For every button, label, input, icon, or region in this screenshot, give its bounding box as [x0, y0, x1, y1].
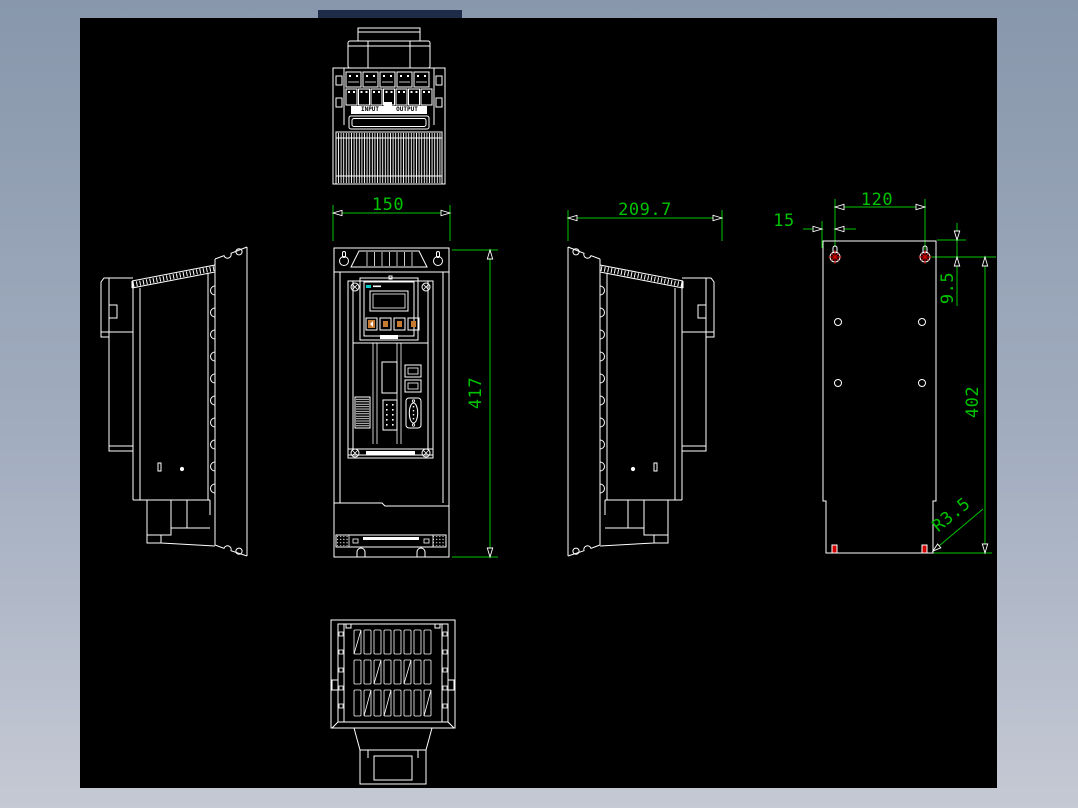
dim-hole-spacing-horizontal: 120 — [852, 191, 902, 210]
status-led — [366, 285, 371, 288]
top-view-drawing — [332, 20, 446, 186]
front-vent-strip — [351, 251, 427, 267]
bottom-connector-housing — [354, 728, 432, 784]
plate-bottom-slots — [832, 545, 927, 553]
vent-slot-grid — [354, 630, 431, 716]
dim-hole-spacing-vertical: 402 — [949, 378, 997, 426]
db9-connector — [406, 398, 421, 428]
keypad-buttons — [366, 318, 419, 330]
plate-keyhole-left — [829, 246, 842, 264]
plate-keyhole-right — [919, 246, 932, 264]
top-navy-strip — [318, 10, 462, 18]
dim-front-width: 150 — [363, 196, 413, 215]
dim-side-depth: 209.7 — [608, 201, 682, 220]
bottom-gland-band — [336, 535, 446, 547]
bottom-view-drawing — [330, 618, 456, 788]
dim-hole-edge-offset: 15 — [768, 212, 800, 231]
heatsink-fins — [336, 132, 442, 184]
dim-front-height: 417 — [452, 369, 500, 417]
drawing-canvas[interactable]: 150 209.7 417 120 15 9.5 402 R3.5 INPUT … — [80, 18, 997, 788]
keypad-panel — [360, 278, 419, 340]
plate-pilot-holes — [835, 319, 926, 387]
left-side-view-drawing — [92, 245, 248, 558]
output-terminal-label: OUTPUT — [388, 106, 426, 114]
front-view-drawing — [333, 247, 450, 558]
terminal-row-1 — [346, 72, 429, 87]
input-terminal-label: INPUT — [352, 106, 388, 114]
mounting-plate-drawing — [822, 240, 937, 557]
right-side-view-drawing — [567, 245, 723, 558]
io-card-connectors — [355, 362, 421, 430]
dim-hole-top-offset: 9.5 — [924, 264, 972, 312]
